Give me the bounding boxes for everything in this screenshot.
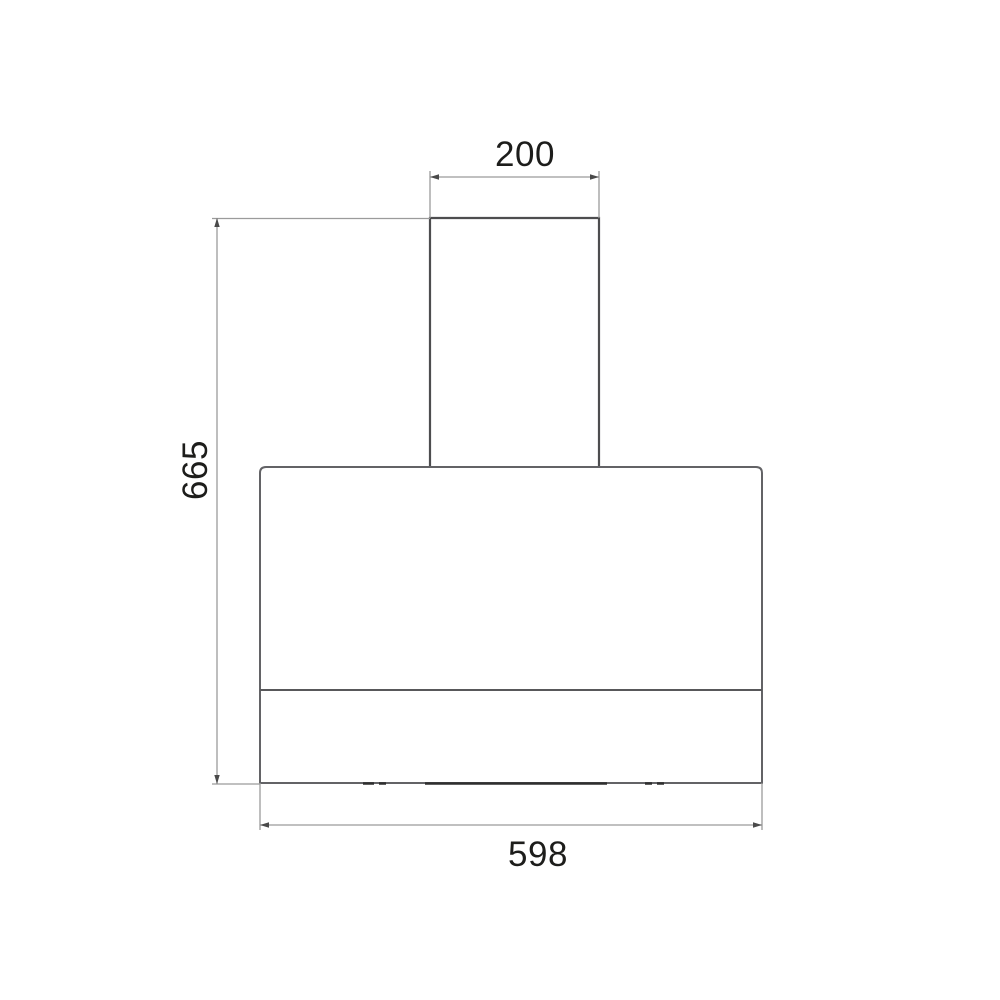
hood-dimension-drawing: 200 665 598 [0, 0, 1000, 1000]
dimension-side-height: 665 [176, 218, 430, 784]
dimension-drawing-page: 200 665 598 [0, 0, 1000, 1000]
dimension-top-width: 200 [430, 135, 599, 218]
arrowhead-top-icon [214, 218, 219, 227]
arrowhead-right-icon [753, 822, 762, 827]
dimension-label-bottom-width: 598 [508, 835, 568, 874]
arrowhead-bottom-icon [214, 775, 219, 784]
arrowhead-left-icon [260, 822, 269, 827]
dimension-extension-lines [260, 783, 762, 830]
dimension-extension-lines [430, 171, 599, 218]
body-outline [260, 467, 762, 783]
hood-outline [260, 218, 762, 784]
dimension-label-side-height: 665 [176, 440, 215, 500]
dimension-extension-lines [212, 219, 430, 785]
arrowhead-left-icon [430, 174, 439, 179]
arrowhead-right-icon [590, 174, 599, 179]
dimension-label-top-width: 200 [495, 135, 555, 174]
dimension-bottom-width: 598 [260, 783, 762, 874]
chimney-outline [430, 218, 599, 467]
